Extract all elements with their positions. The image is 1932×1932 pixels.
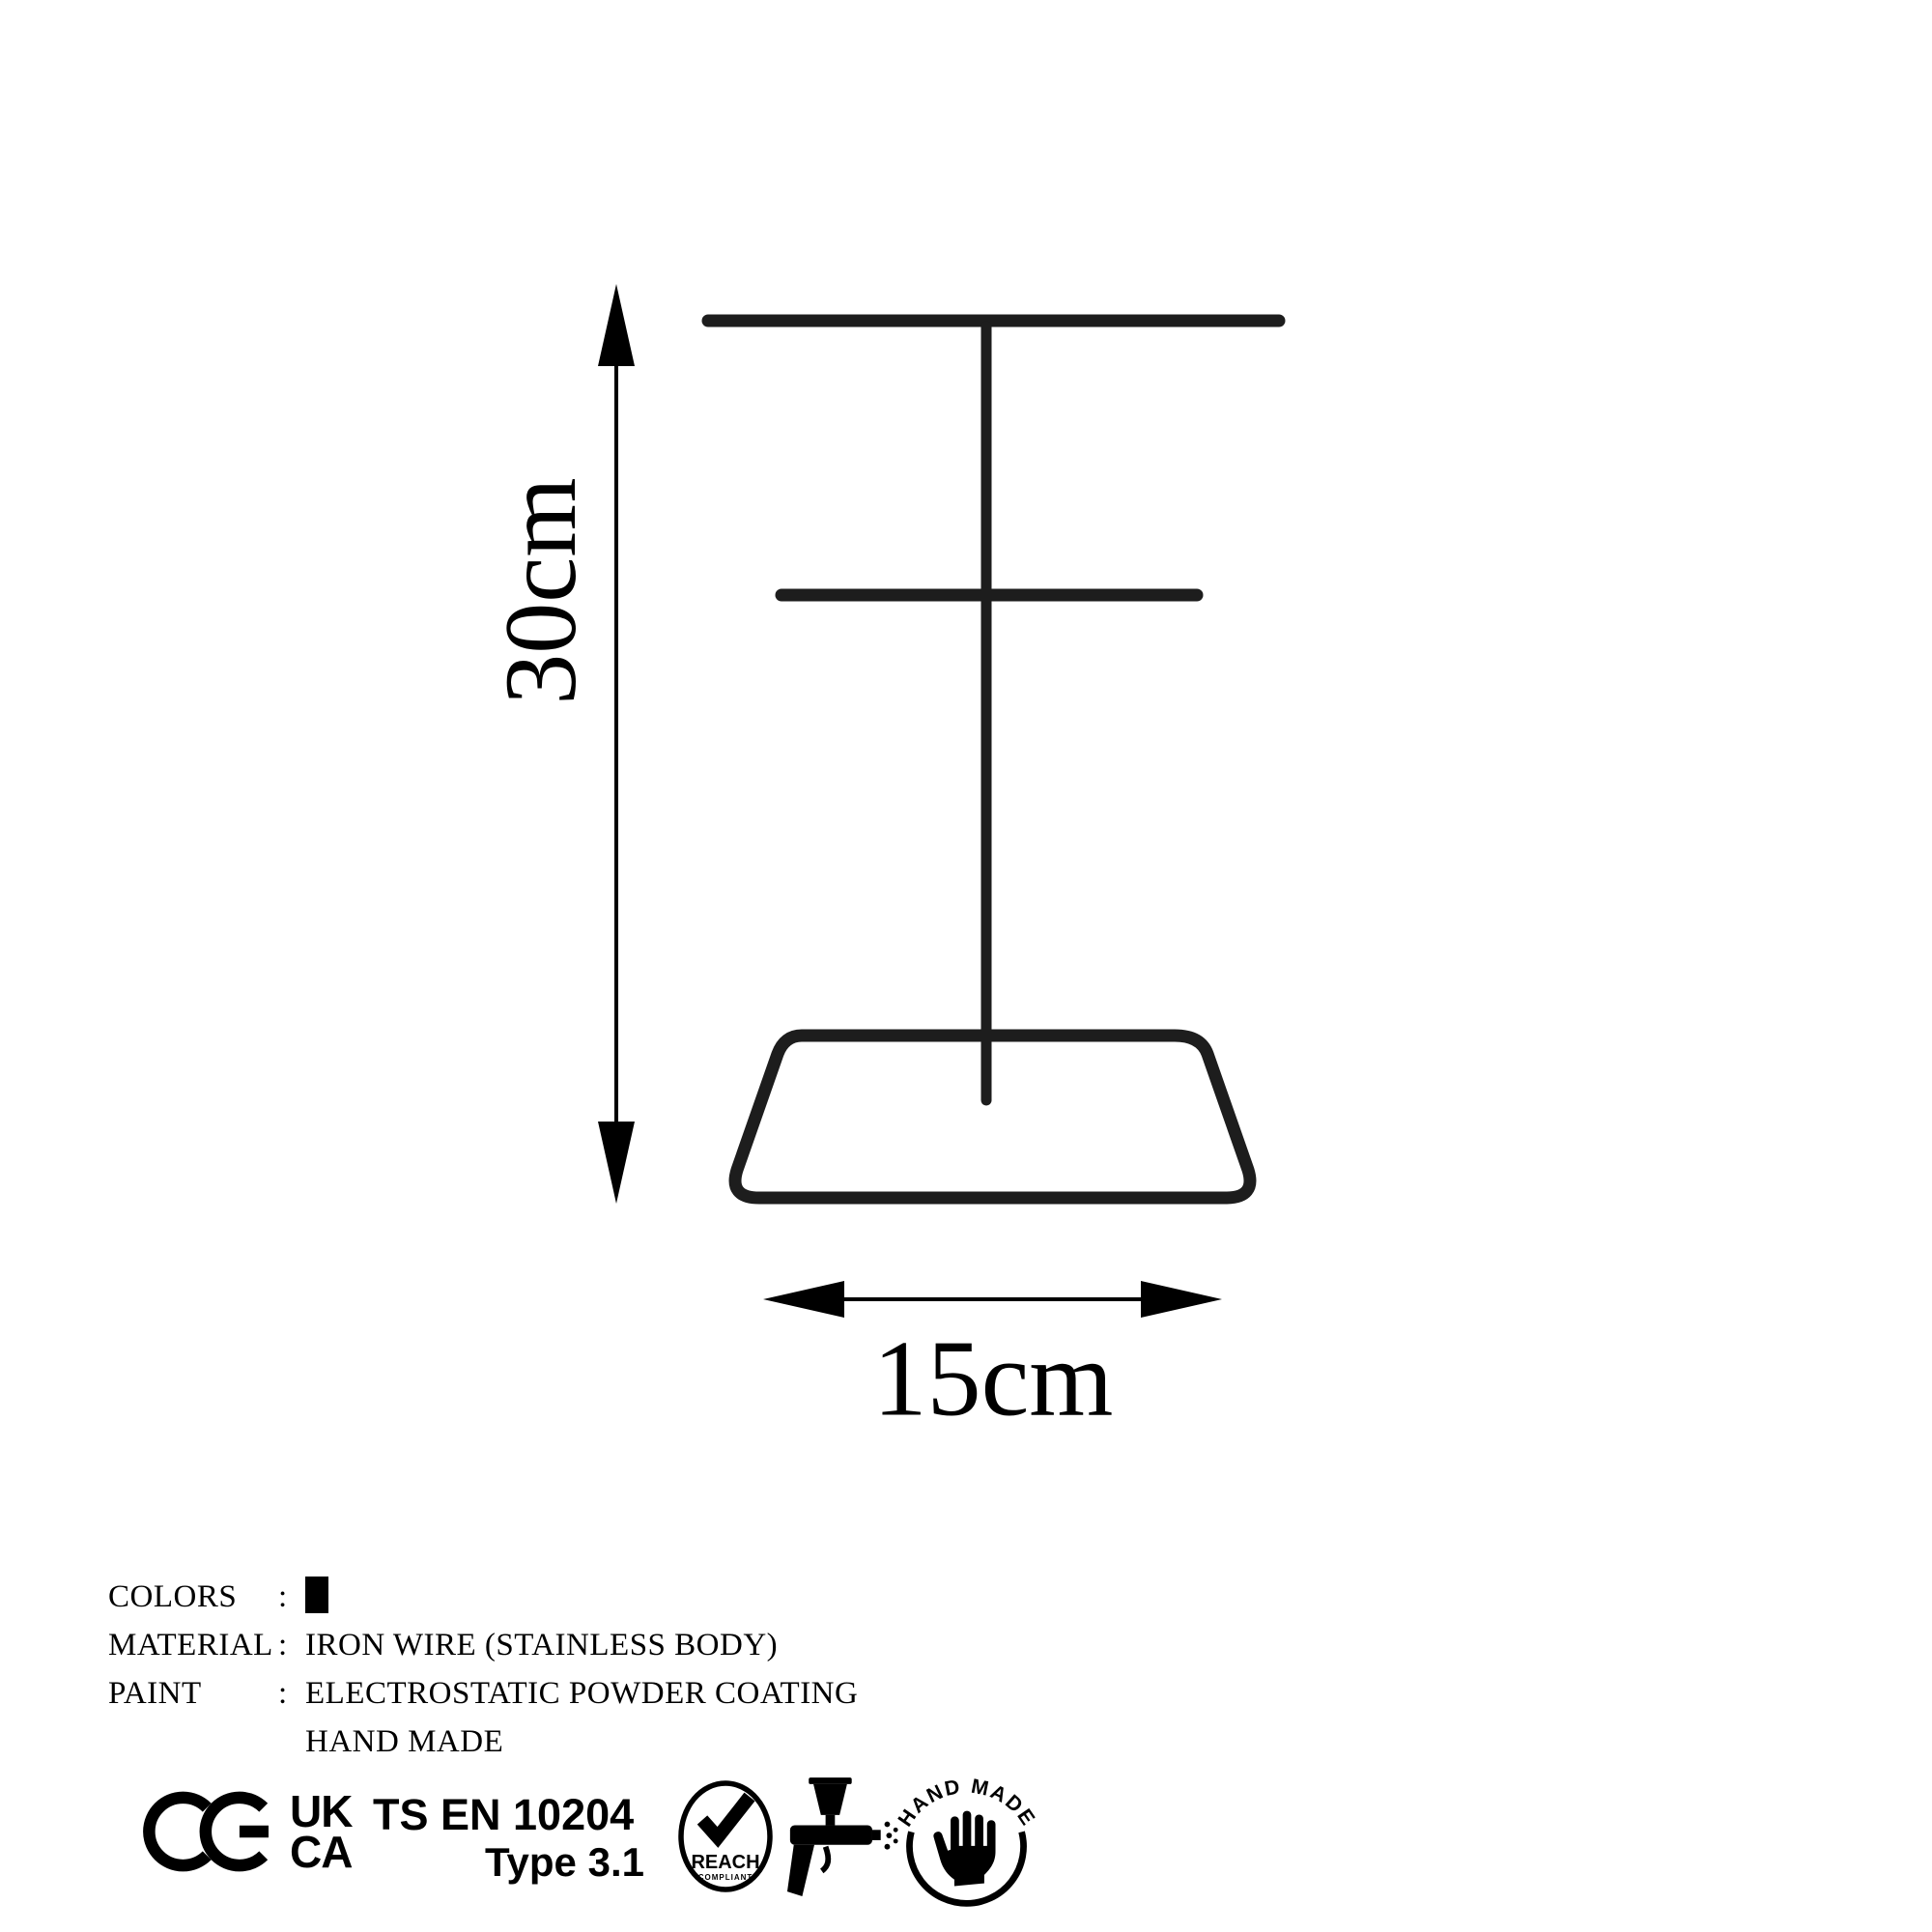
spec-label: PAINT	[108, 1669, 278, 1718]
wire-stand	[708, 321, 1279, 1198]
width-arrowhead-left-icon	[763, 1281, 844, 1318]
color-swatch-black	[305, 1577, 328, 1613]
spec-value: IRON WIRE (STAINLESS BODY)	[305, 1621, 778, 1669]
height-arrowhead-top-icon	[598, 284, 635, 366]
width-dimension-label: 15cm	[873, 1318, 1114, 1442]
width-arrowhead-right-icon	[1141, 1281, 1222, 1318]
height-dimension-label: 30cm	[482, 477, 600, 705]
spec-colon: :	[278, 1669, 296, 1718]
spec-colon: :	[278, 1573, 296, 1621]
spec-value: HAND MADE	[305, 1718, 503, 1766]
spec-row-paint: PAINT : ELECTROSTATIC POWDER COATING	[108, 1669, 858, 1718]
spec-value: ELECTROSTATIC POWDER COATING	[305, 1669, 858, 1718]
dimension-annotations	[598, 284, 1222, 1318]
base-frame	[735, 1036, 1250, 1198]
spec-table: COLORS : MATERIAL : IRON WIRE (STAINLESS…	[108, 1573, 858, 1766]
spec-row-material: MATERIAL : IRON WIRE (STAINLESS BODY)	[108, 1621, 858, 1669]
spec-label: MATERIAL	[108, 1621, 278, 1669]
height-arrowhead-bottom-icon	[598, 1122, 635, 1204]
spec-label: COLORS	[108, 1573, 278, 1621]
product-dimension-diagram: 30cm 15cm COLORS : MATERIAL : IRON WIRE …	[0, 0, 1932, 1932]
spec-colon: :	[278, 1621, 296, 1669]
spec-row-handmade: HAND MADE	[108, 1718, 858, 1766]
spec-row-colors: COLORS :	[108, 1573, 858, 1621]
